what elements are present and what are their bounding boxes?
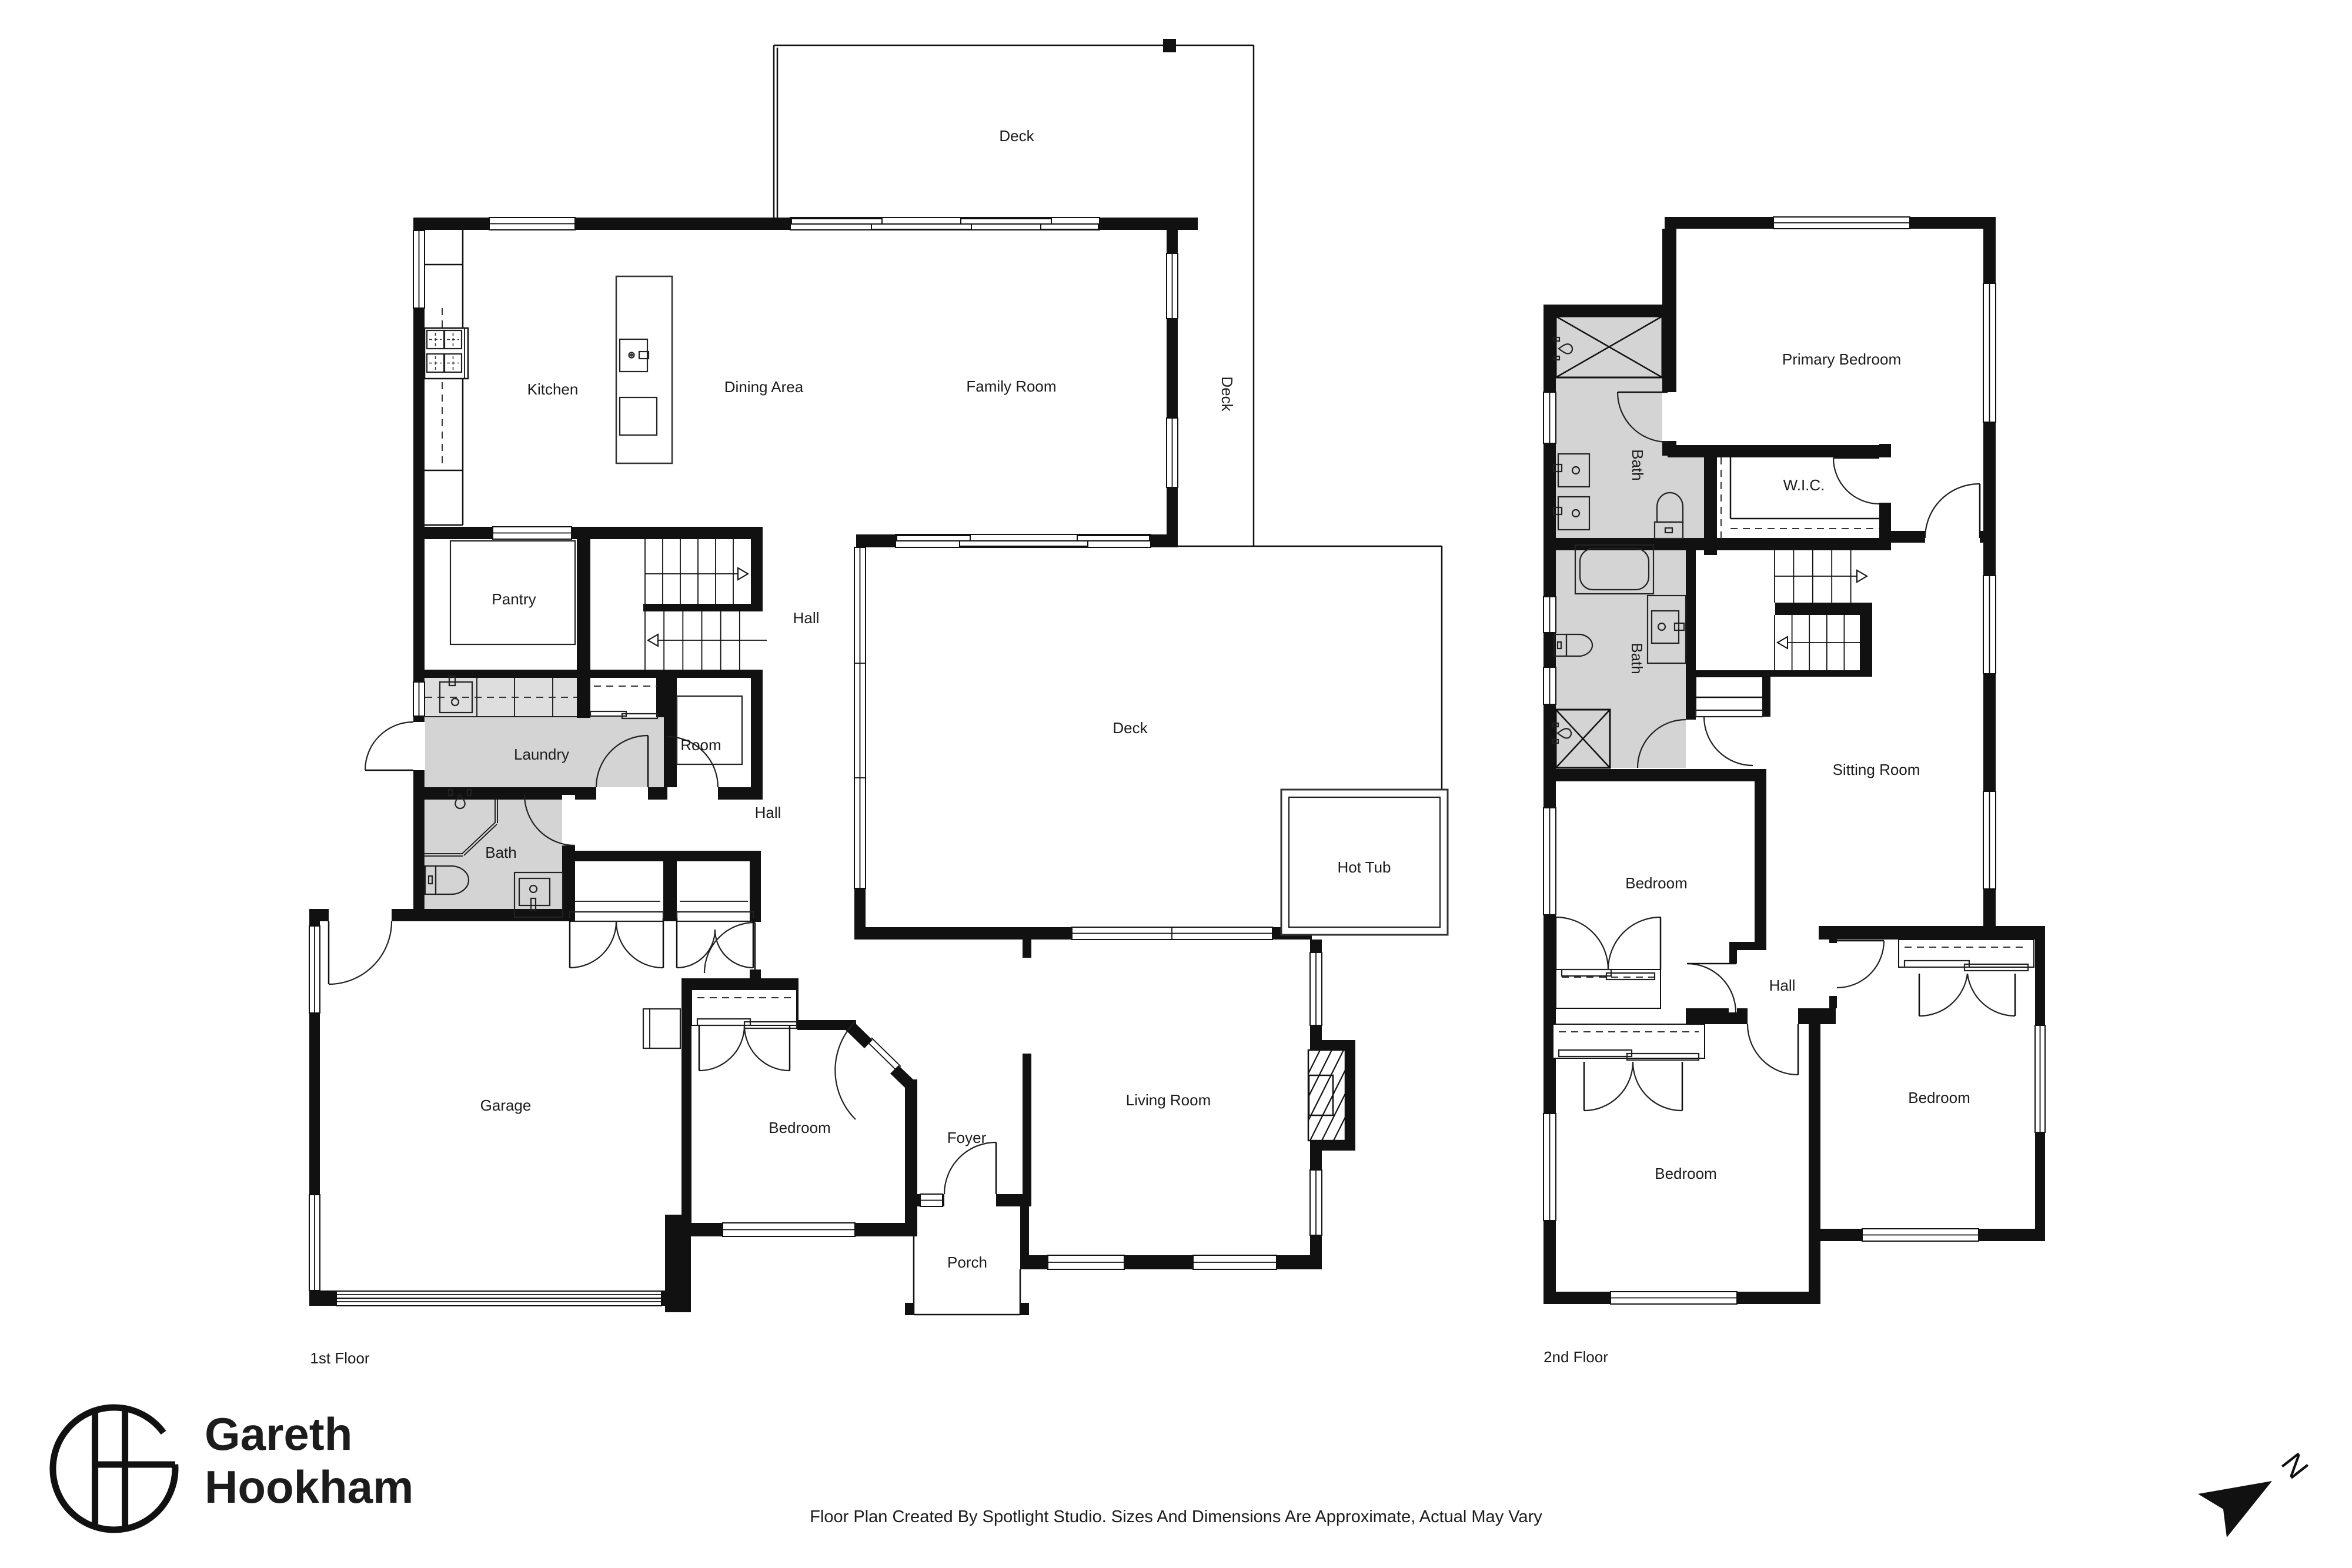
- svg-text:Bath: Bath: [485, 844, 517, 861]
- svg-text:Sitting Room: Sitting Room: [1833, 761, 1920, 778]
- svg-text:Hookham: Hookham: [205, 1461, 413, 1513]
- svg-text:Foyer: Foyer: [947, 1129, 987, 1146]
- svg-text:Hall: Hall: [755, 804, 781, 821]
- svg-text:Floor Plan Created By Spotligh: Floor Plan Created By Spotlight Studio. …: [810, 1507, 1542, 1526]
- svg-text:Bedroom: Bedroom: [1655, 1165, 1717, 1182]
- svg-text:Bath: Bath: [1629, 449, 1646, 481]
- svg-text:Pantry: Pantry: [492, 590, 536, 608]
- svg-text:Garage: Garage: [480, 1096, 532, 1114]
- svg-text:Laundry: Laundry: [514, 745, 569, 763]
- svg-text:Bath: Bath: [1628, 643, 1646, 674]
- svg-text:Hall: Hall: [1769, 977, 1796, 994]
- svg-text:1st Floor: 1st Floor: [310, 1349, 369, 1367]
- svg-text:Bedroom: Bedroom: [1625, 874, 1688, 892]
- svg-text:Bedroom: Bedroom: [769, 1119, 831, 1136]
- svg-text:Kitchen: Kitchen: [527, 380, 579, 398]
- svg-text:2nd Floor: 2nd Floor: [1543, 1348, 1608, 1366]
- svg-text:Deck: Deck: [1112, 719, 1148, 737]
- svg-text:Primary Bedroom: Primary Bedroom: [1782, 350, 1901, 368]
- svg-text:Room: Room: [680, 736, 721, 754]
- svg-text:Gareth: Gareth: [205, 1408, 352, 1460]
- svg-text:Family Room: Family Room: [966, 377, 1056, 395]
- svg-text:Hall: Hall: [793, 609, 820, 627]
- svg-text:Deck: Deck: [999, 127, 1034, 145]
- svg-text:Bedroom: Bedroom: [1908, 1089, 1970, 1106]
- svg-text:W.I.C.: W.I.C.: [1783, 476, 1825, 494]
- svg-text:Porch: Porch: [947, 1253, 987, 1271]
- svg-text:Dining Area: Dining Area: [724, 378, 804, 396]
- svg-text:Deck: Deck: [1218, 376, 1236, 412]
- svg-text:Hot Tub: Hot Tub: [1337, 858, 1391, 876]
- svg-text:Living Room: Living Room: [1126, 1091, 1211, 1109]
